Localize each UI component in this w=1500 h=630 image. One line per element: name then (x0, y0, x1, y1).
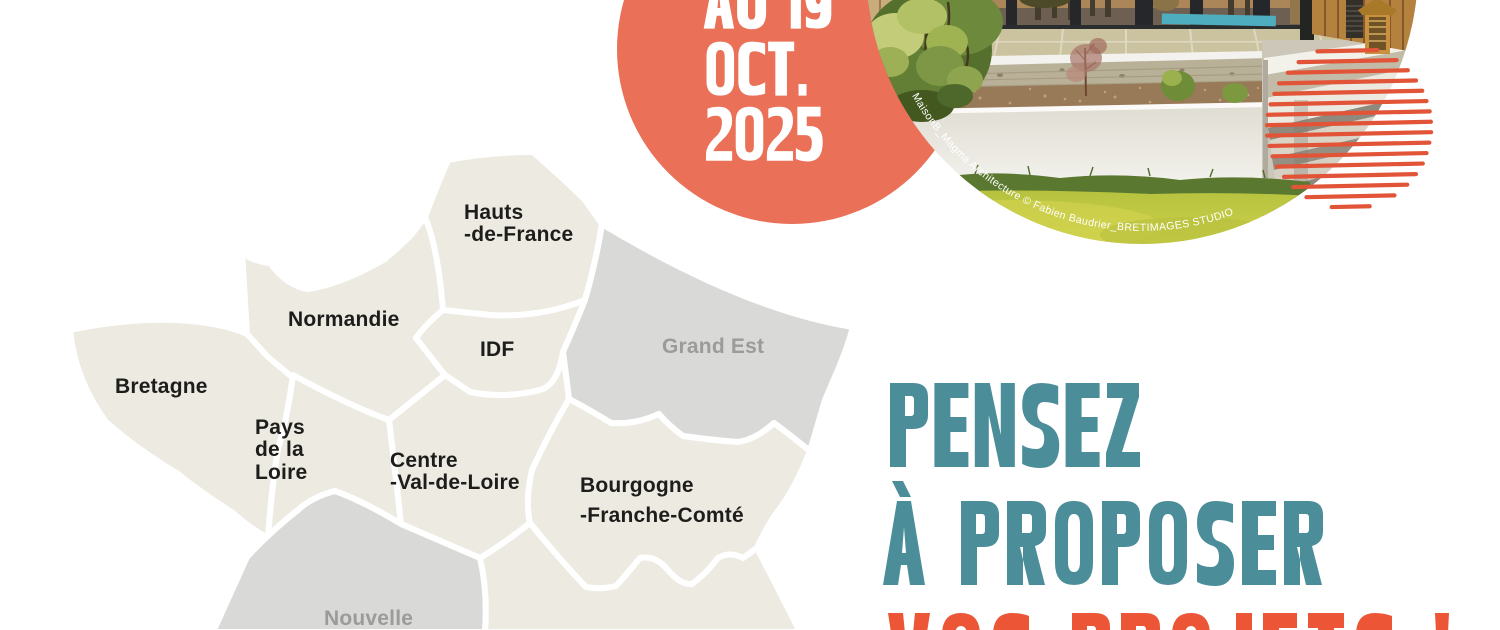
svg-text:de la: de la (255, 438, 304, 461)
svg-text:Pays: Pays (255, 416, 305, 439)
svg-text:Bretagne: Bretagne (115, 375, 208, 398)
svg-text:-Franche-Comté: -Franche-Comté (580, 504, 744, 527)
svg-text:Loire: Loire (255, 461, 307, 484)
svg-text:Nouvelle: Nouvelle (324, 607, 413, 630)
svg-text:-Val-de-Loire: -Val-de-Loire (390, 471, 520, 494)
svg-text:Bourgogne: Bourgogne (580, 474, 694, 497)
svg-text:Normandie: Normandie (288, 308, 400, 331)
svg-text:Centre: Centre (390, 449, 458, 472)
svg-text:IDF: IDF (480, 338, 514, 361)
svg-text:-de-France: -de-France (464, 223, 573, 246)
svg-text:Hauts: Hauts (464, 201, 523, 224)
svg-text:Grand Est: Grand Est (662, 335, 764, 358)
